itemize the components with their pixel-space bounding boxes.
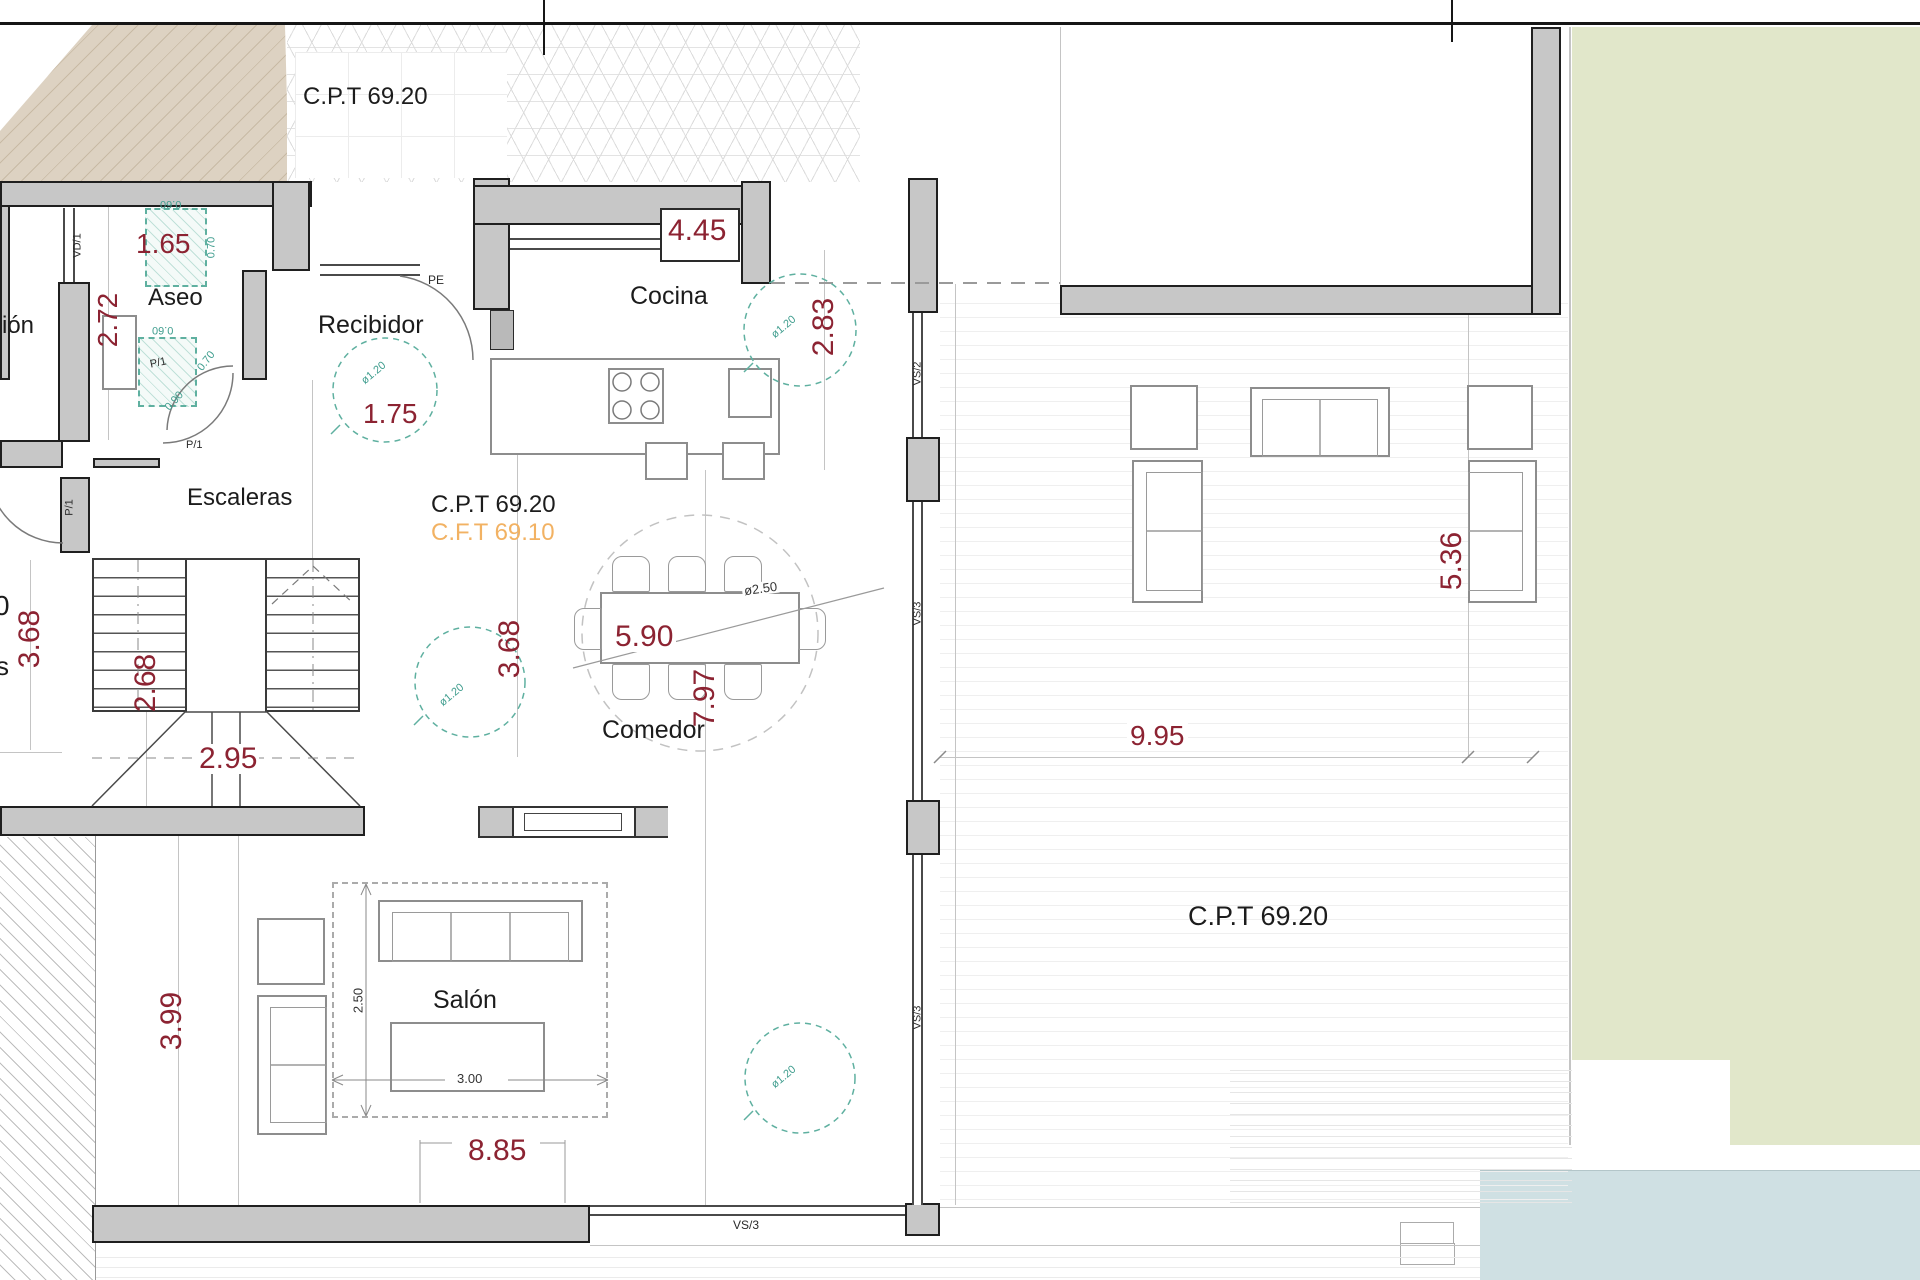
tv <box>524 813 622 831</box>
window-vs3-bottom <box>590 1205 905 1216</box>
room-label-cocina: Cocina <box>630 284 708 309</box>
boundary-tick <box>1451 0 1453 42</box>
terrace-sofa-seats <box>1262 399 1378 457</box>
site-level-label: C.P.T 69.20 <box>303 85 428 109</box>
dim-salon-width: 8.85 <box>468 1136 526 1166</box>
dim-fixture-depth: 0.70 <box>207 198 218 298</box>
dim-salon-height: 7.97 <box>690 648 720 748</box>
dining-chair <box>798 608 826 650</box>
tile-grid-area <box>295 52 507 178</box>
dim-salon-zone-height: 2.50 <box>352 951 365 1051</box>
stairs-void <box>185 558 267 712</box>
side-table <box>257 918 325 985</box>
dining-chair <box>612 556 650 592</box>
tag-vs3-upper: VS/3 <box>913 564 924 664</box>
wall <box>905 1203 940 1236</box>
garden-edge-line <box>1569 27 1571 1145</box>
level-label-cft: C.F.T 69.10 <box>431 521 555 545</box>
tag-vs2: VS/2 <box>913 324 924 424</box>
tag-pe: PE <box>428 274 444 286</box>
window-pe-entry <box>320 264 420 276</box>
kitchen-stool <box>645 442 688 480</box>
cut-text: s <box>0 653 9 679</box>
dim-salon-zone-width: 3.00 <box>455 1072 484 1085</box>
dining-chair <box>724 664 762 700</box>
grid-line <box>955 284 956 1205</box>
pool-step <box>1400 1222 1454 1244</box>
garden-green-area-lower <box>1730 1060 1920 1145</box>
wall <box>92 1205 590 1243</box>
media-console-cap <box>634 808 668 836</box>
dim-left-wing: 3.68 <box>15 589 45 689</box>
aseo-fixture <box>138 337 197 407</box>
wall <box>0 205 10 380</box>
dim-stairs-length: 2.95 <box>197 744 259 774</box>
dim-cocina-width: 4.45 <box>668 216 726 246</box>
tag-p1-escaleras: P/1 <box>186 440 203 451</box>
dim-comedor-width: 5.90 <box>612 622 676 652</box>
cut-text: 0 <box>0 592 10 620</box>
dim-aseo-height: 2.72 <box>94 270 122 370</box>
wall <box>0 806 365 836</box>
dining-chair <box>612 664 650 700</box>
wall <box>741 181 771 284</box>
dining-chair <box>668 556 706 592</box>
dim-recibidor: 1.75 <box>363 400 418 428</box>
deck-edge-line <box>590 1245 1480 1246</box>
wall <box>0 440 63 468</box>
wall <box>908 178 938 313</box>
room-label-aseo: Aseo <box>148 286 203 310</box>
dim-comedor-height: 3.68 <box>495 599 525 699</box>
tag-vd1: VD/1 <box>73 196 84 296</box>
wall <box>906 800 940 855</box>
tag-p1-left: P/1 <box>65 458 76 558</box>
sofa-seats <box>392 912 569 962</box>
sink <box>728 368 772 418</box>
wall-garage-bottom <box>1060 285 1558 315</box>
room-label-salon: Salón <box>433 988 497 1013</box>
dim-circle: ø1.20 <box>770 314 799 341</box>
slope-hatch-area <box>0 837 95 1280</box>
deck-edge-line <box>940 1207 1480 1208</box>
grid-line <box>312 380 313 558</box>
boundary-tick <box>543 0 545 55</box>
deck-stripes-bottom <box>95 1248 1480 1280</box>
beige-earth-area <box>0 25 292 183</box>
tag-vs3-bottom: VS/3 <box>733 1219 759 1231</box>
deck-stripes-bottom-right <box>1230 1060 1572 1205</box>
grid-line <box>0 752 62 753</box>
terrace-side-table <box>1467 385 1533 450</box>
site-boundary-line <box>0 22 1920 25</box>
terrace-level-label: C.P.T 69.20 <box>1188 903 1328 930</box>
kitchen-stool <box>722 442 765 480</box>
dim-circle: ø1.20 <box>360 360 389 387</box>
stove <box>608 368 664 424</box>
room-label-escaleras: Escaleras <box>187 486 292 510</box>
level-label-cpt: C.P.T 69.20 <box>431 493 556 517</box>
terrace-side-table <box>1130 385 1198 450</box>
wall-garage-right <box>1531 27 1561 315</box>
dim-salon-side: 3.99 <box>157 971 187 1071</box>
wall <box>93 458 160 468</box>
wall-pier <box>490 310 514 350</box>
terrace-sofa-seats <box>1468 472 1523 591</box>
wall <box>906 437 940 502</box>
wall <box>272 181 310 271</box>
dim-terrace-side: 5.36 <box>1437 511 1467 611</box>
dim-circle: ø1.20 <box>438 682 467 709</box>
garden-green-area <box>1572 27 1920 1060</box>
dim-fixture-width: 0.60 <box>160 198 181 209</box>
dim-aseo-width: 1.65 <box>136 230 191 258</box>
media-console-cap <box>480 808 514 836</box>
dim-stairs-width: 2.68 <box>131 633 161 733</box>
armchair-seat <box>270 1007 327 1123</box>
dim-terrace-width: 9.95 <box>1127 722 1188 750</box>
wall <box>0 181 312 207</box>
dim-fixture-depth: 0.70 <box>196 350 218 374</box>
floor-plan: C.P.T 69.20 Cocina Recibidor Aseo ión Es… <box>0 0 1920 1280</box>
grid-line <box>238 836 239 1205</box>
terrace-sofa-seats <box>1146 472 1203 591</box>
dim-circle: ø1.20 <box>770 1064 799 1091</box>
dim-line-terrace-width <box>940 757 1533 758</box>
dim-cocina-height: 2.83 <box>809 277 839 377</box>
room-label-cut: ión <box>2 314 34 338</box>
wall <box>58 282 90 442</box>
wall <box>242 270 267 380</box>
dim-fixture-width: 0.60 <box>152 324 173 335</box>
grid-line <box>1060 27 1061 285</box>
tag-vs3-lower: VS/3 <box>913 968 924 1068</box>
dining-chair <box>574 608 602 650</box>
room-label-recibidor: Recibidor <box>318 313 424 338</box>
